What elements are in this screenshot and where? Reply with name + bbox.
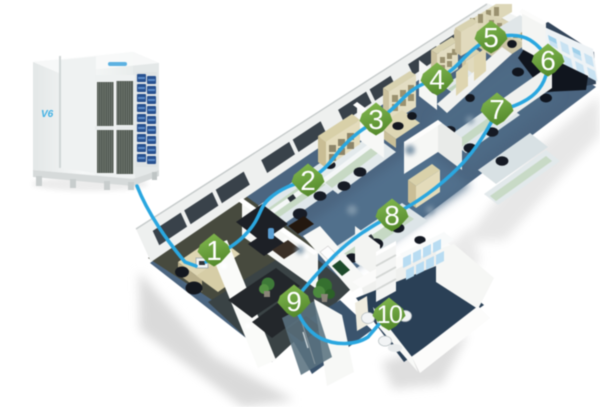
svg-text:1: 1: [206, 235, 222, 266]
svg-text:4: 4: [429, 64, 445, 95]
svg-text:2: 2: [300, 165, 316, 196]
svg-text:V6: V6: [41, 109, 54, 120]
svg-text:8: 8: [384, 200, 400, 231]
svg-text:6: 6: [540, 45, 556, 76]
svg-text:3: 3: [368, 104, 384, 135]
svg-text:10: 10: [377, 301, 402, 329]
svg-text:9: 9: [286, 286, 302, 317]
svg-text:5: 5: [483, 22, 499, 53]
svg-text:7: 7: [489, 94, 505, 125]
